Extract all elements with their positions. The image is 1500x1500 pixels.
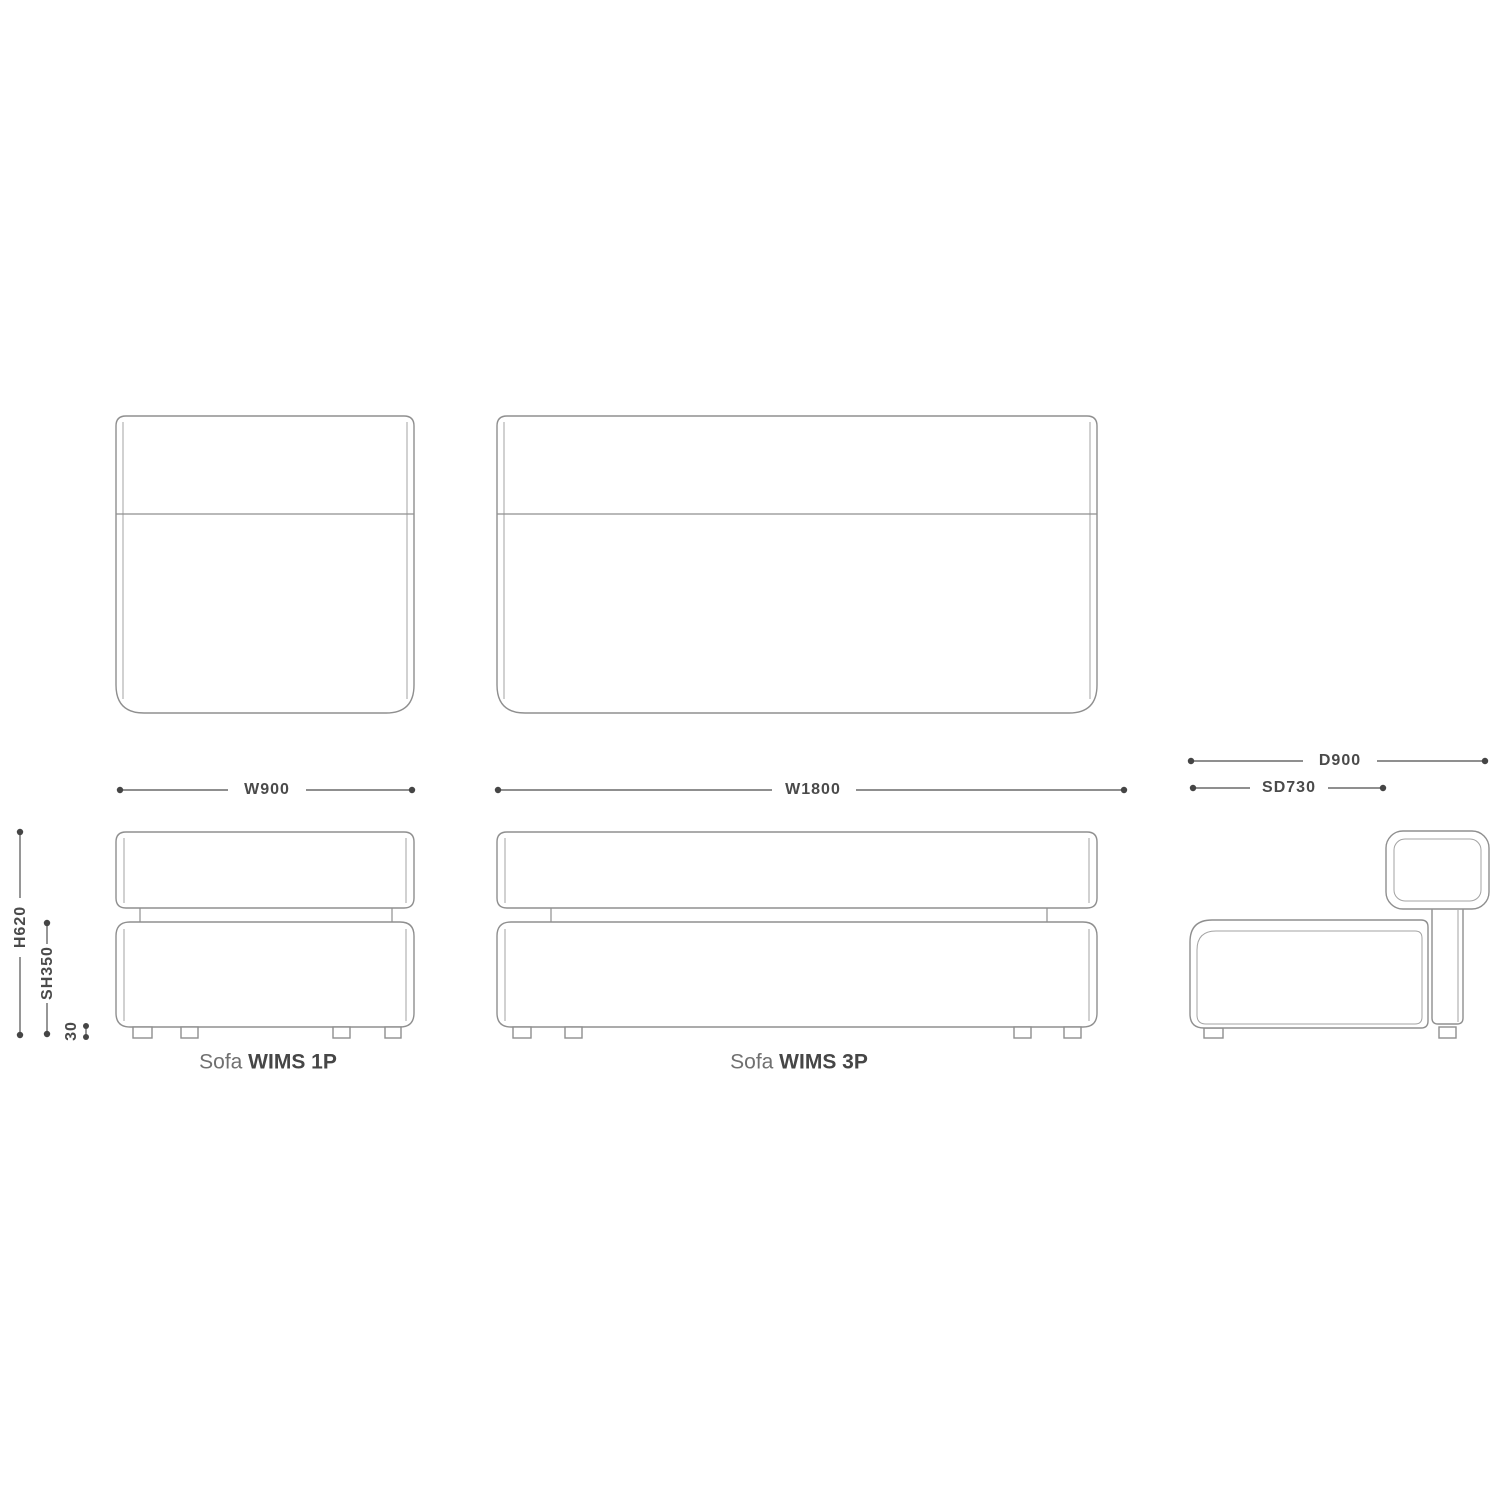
sofa-3p-label-prefix: Sofa [730, 1051, 773, 1074]
sofa-side-view [1190, 831, 1489, 1038]
sofa-1p-top-view [116, 416, 414, 713]
sofa-1p-label-name: WIMS 1P [248, 1051, 337, 1074]
sofa-dimension-drawing: W900 W1800 D900 SD730 H620 SH350 30 Sofa… [0, 0, 1500, 1500]
dim-sh350-label: SH350 [40, 946, 56, 1000]
dim-d900-label: D900 [1319, 753, 1361, 769]
sofa-3p-top-view [497, 416, 1097, 713]
sofa-3p-label: Sofa WIMS 3P [730, 1052, 868, 1073]
dim-sd730-label: SD730 [1262, 780, 1316, 796]
dim-leg30-line [83, 1023, 89, 1040]
dim-leg30-label: 30 [64, 1021, 80, 1041]
dim-w900-label: W900 [244, 782, 290, 798]
sofa-1p-label-prefix: Sofa [199, 1051, 242, 1074]
sofa-1p-label: Sofa WIMS 1P [199, 1052, 337, 1073]
drawing-linework [0, 0, 1500, 1500]
sofa-1p-front-view [116, 832, 414, 1038]
dim-h620-label: H620 [13, 906, 29, 948]
sofa-3p-front-view [497, 832, 1097, 1038]
dim-w1800-label: W1800 [785, 782, 841, 798]
sofa-3p-label-name: WIMS 3P [779, 1051, 868, 1074]
